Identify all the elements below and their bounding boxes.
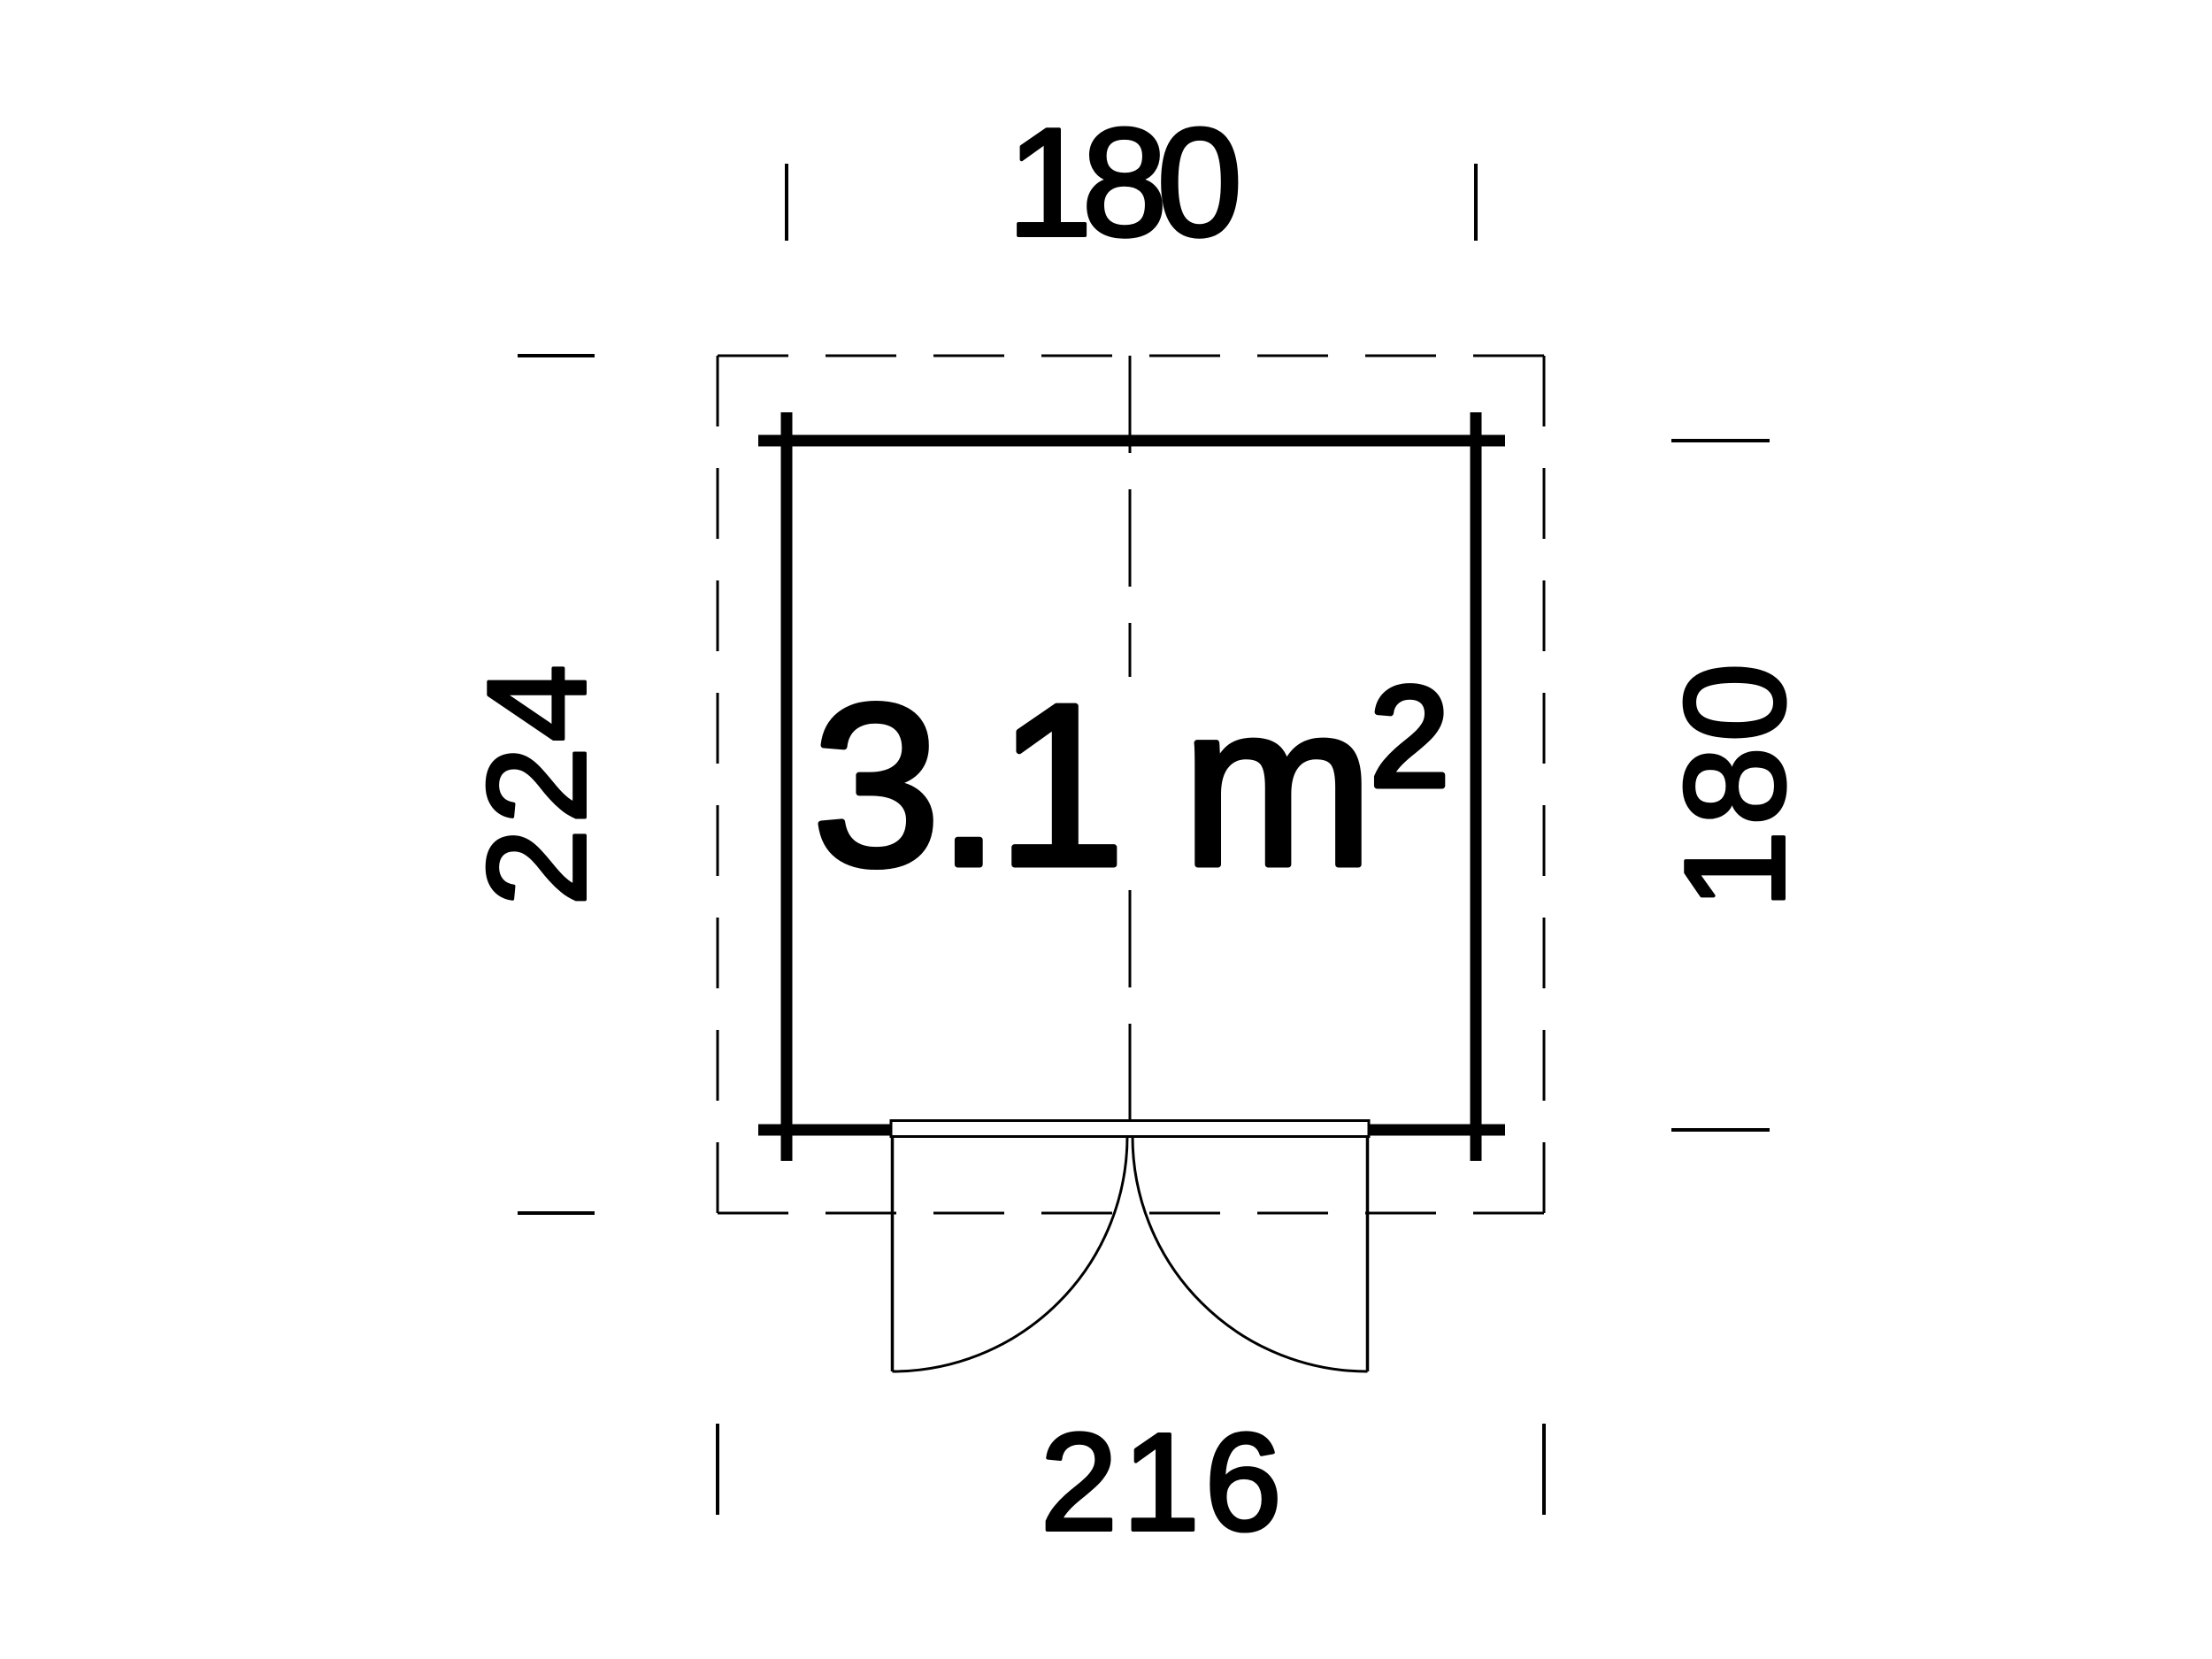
svg-text:216: 216 bbox=[1041, 1405, 1286, 1560]
svg-text:3.1 m2: 3.1 m2 bbox=[812, 657, 1446, 914]
svg-text:224: 224 bbox=[459, 660, 615, 907]
svg-text:180: 180 bbox=[1007, 96, 1237, 268]
svg-text:180: 180 bbox=[1655, 658, 1815, 910]
